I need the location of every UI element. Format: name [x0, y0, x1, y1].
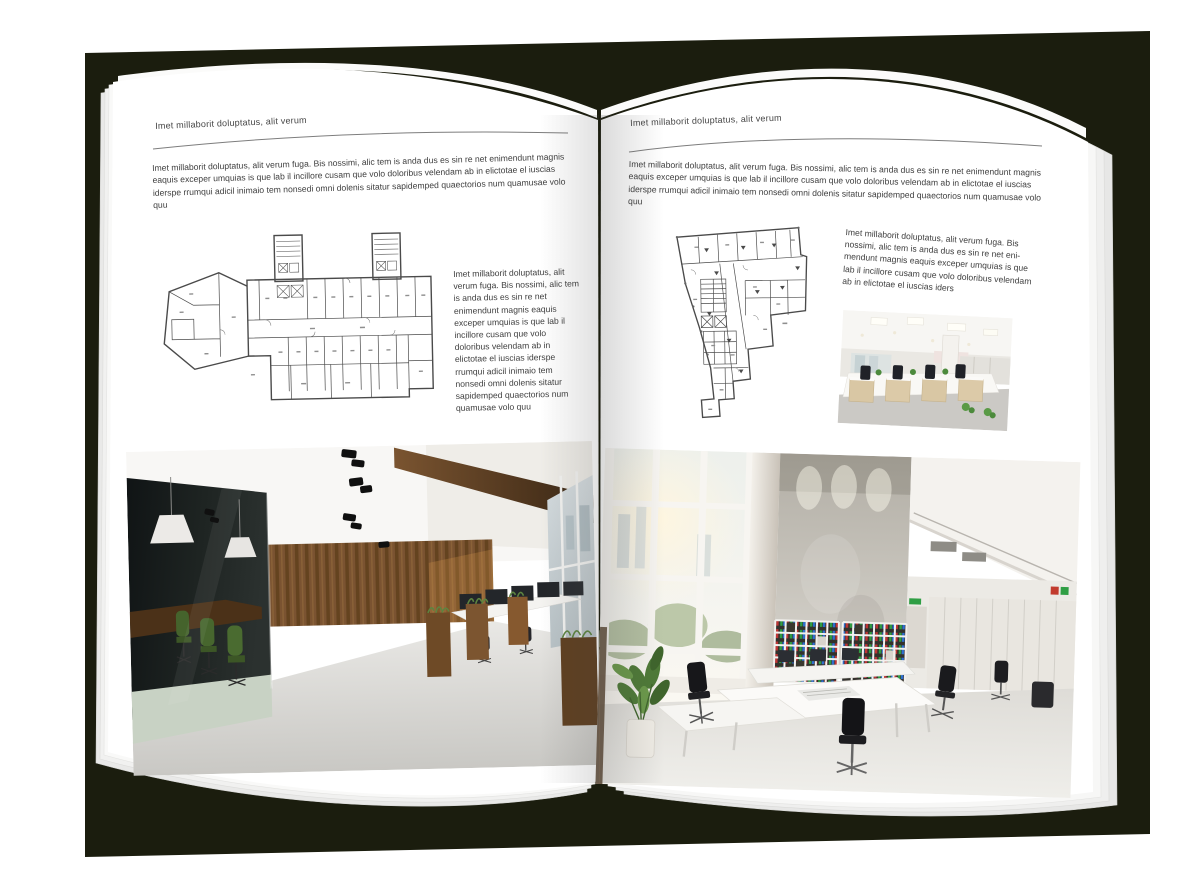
waste-bin — [1031, 681, 1054, 707]
right-page-photo-small — [837, 310, 1012, 431]
plan-room-numbers — [179, 288, 427, 387]
left-page-column-text: Imet millaborit doluptatus, alit verum f… — [453, 265, 583, 414]
door — [905, 606, 927, 668]
exit-sign — [1061, 587, 1069, 595]
top-edge-notch — [1076, 56, 1092, 86]
right-page-photo — [595, 448, 1081, 798]
plan-door-marks — [704, 243, 801, 374]
right-page-intro: Imet millaborit doluptatus, alit verum f… — [628, 158, 1055, 217]
brochure-mockup-scene: Imet millaborit doluptatus, alit verum I… — [0, 0, 1200, 891]
left-floor-plan — [158, 230, 449, 418]
first-aid-sign — [1051, 587, 1059, 595]
vent-grille — [931, 541, 957, 552]
right-page-column-text: Imet millaborit doluptatus, alit verum f… — [842, 226, 1043, 300]
left-page-photo — [126, 441, 600, 776]
right-floor-plan — [651, 222, 832, 422]
